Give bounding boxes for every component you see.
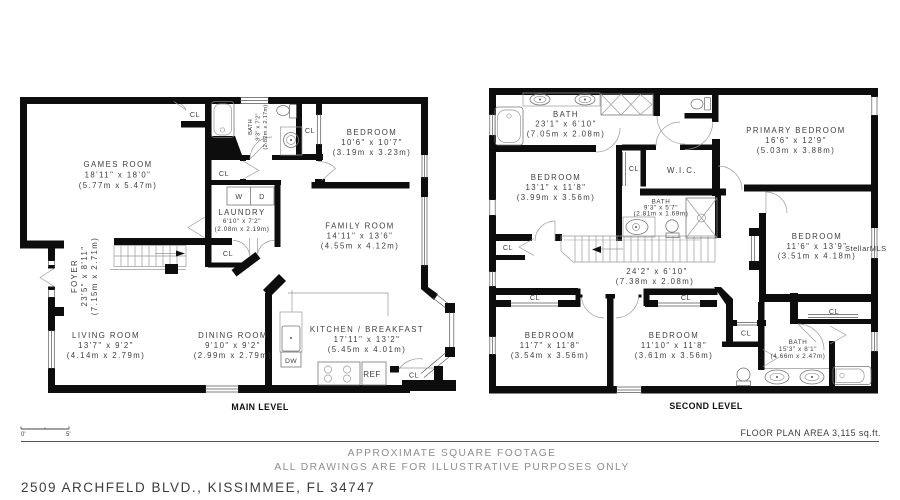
svg-text:FOYER: FOYER: [70, 259, 79, 293]
svg-text:16'6" x 12'9": 16'6" x 12'9": [765, 136, 827, 145]
svg-text:BATH: BATH: [248, 119, 254, 135]
svg-text:(2.81m x 1.69m): (2.81m x 1.69m): [634, 211, 689, 218]
svg-text:13'1" x 11'8": 13'1" x 11'8": [525, 183, 586, 192]
svg-text:SECOND LEVEL: SECOND LEVEL: [669, 401, 742, 411]
svg-text:BEDROOM: BEDROOM: [531, 173, 581, 182]
svg-text:11'7" x 11'8": 11'7" x 11'8": [520, 341, 580, 350]
svg-text:BATH: BATH: [789, 339, 808, 346]
svg-text:15'3" x 8'1": 15'3" x 8'1": [779, 346, 817, 353]
svg-text:CL: CL: [503, 243, 513, 252]
svg-text:14'11" x 13'6": 14'11" x 13'6": [327, 232, 394, 241]
svg-text:2509 ARCHFELD BLVD., KISSIMMEE: 2509 ARCHFELD BLVD., KISSIMMEE, FL 34747: [21, 480, 375, 495]
svg-text:FAMILY ROOM: FAMILY ROOM: [325, 222, 394, 231]
svg-text:BEDROOM: BEDROOM: [347, 128, 397, 137]
svg-text:(4.14m x 2.79m): (4.14m x 2.79m): [67, 351, 146, 360]
svg-text:(3.19m x 3.23m): (3.19m x 3.23m): [333, 148, 412, 157]
svg-text:MAIN LEVEL: MAIN LEVEL: [231, 402, 288, 412]
svg-text:BEDROOM: BEDROOM: [525, 331, 575, 340]
svg-text:(3.61m x 3.56m): (3.61m x 3.56m): [635, 351, 714, 360]
svg-text:W: W: [235, 192, 242, 201]
svg-text:FLOOR PLAN AREA 3,115 sq.ft.: FLOOR PLAN AREA 3,115 sq.ft.: [741, 428, 881, 438]
svg-text:13'7" x 9'2": 13'7" x 9'2": [78, 341, 134, 350]
svg-text:(4.66m x 2.47m): (4.66m x 2.47m): [771, 353, 826, 360]
svg-text:GAMES ROOM: GAMES ROOM: [83, 160, 152, 169]
svg-text:D: D: [259, 192, 265, 201]
svg-text:(7.38m x 2.08m): (7.38m x 2.08m): [616, 277, 695, 286]
svg-text:(3.54m x 3.56m): (3.54m x 3.56m): [511, 351, 590, 360]
svg-text:BEDROOM: BEDROOM: [792, 232, 842, 241]
svg-text:(7.05m x 2.08m): (7.05m x 2.08m): [527, 130, 606, 139]
svg-text:ALL DRAWINGS ARE FOR ILLUSTRAT: ALL DRAWINGS ARE FOR ILLUSTRATIVE PURPOS…: [274, 462, 629, 473]
svg-text:CL: CL: [530, 293, 540, 302]
svg-text:CL: CL: [829, 307, 839, 316]
svg-text:(7.15m x 2.71m): (7.15m x 2.71m): [90, 237, 99, 316]
svg-text:StellarMLS: StellarMLS: [845, 244, 887, 253]
svg-text:0': 0': [21, 432, 25, 438]
svg-text:11'10" x 11'8": 11'10" x 11'8": [641, 341, 707, 350]
svg-text:9'3" x 7'2": 9'3" x 7'2": [256, 113, 262, 141]
svg-text:CL: CL: [223, 249, 233, 258]
svg-text:CL: CL: [190, 110, 200, 119]
svg-text:BATH: BATH: [553, 110, 579, 119]
svg-text:CL: CL: [409, 371, 419, 380]
svg-text:6'10" x 7'2": 6'10" x 7'2": [223, 218, 261, 225]
svg-text:(4.55m x 4.12m): (4.55m x 4.12m): [321, 242, 400, 251]
svg-text:KITCHEN / BREAKFAST: KITCHEN / BREAKFAST: [310, 325, 424, 334]
svg-text:BEDROOM: BEDROOM: [649, 331, 699, 340]
svg-text:11'6" x 13'9": 11'6" x 13'9": [786, 242, 847, 251]
svg-text:CL: CL: [629, 164, 639, 173]
svg-text:CL: CL: [681, 293, 691, 302]
svg-text:(2.82m x 2.17m): (2.82m x 2.17m): [263, 104, 269, 149]
svg-text:DW: DW: [285, 358, 297, 365]
svg-text:(2.99m x 2.79m): (2.99m x 2.79m): [194, 351, 273, 360]
svg-text:(3.99m x 3.56m): (3.99m x 3.56m): [517, 193, 596, 202]
svg-text:(2.08m x 2.19m): (2.08m x 2.19m): [215, 226, 270, 233]
svg-text:APPROXIMATE SQUARE FOOTAGE: APPROXIMATE SQUARE FOOTAGE: [348, 448, 557, 459]
svg-text:REF: REF: [363, 370, 381, 379]
svg-text:24'2" x 6'10": 24'2" x 6'10": [626, 267, 688, 276]
svg-text:PRIMARY BEDROOM: PRIMARY BEDROOM: [746, 126, 845, 135]
svg-text:(5.45m x 4.01m): (5.45m x 4.01m): [328, 345, 407, 354]
svg-text:18'11" x 18'0": 18'11" x 18'0": [85, 171, 152, 180]
svg-text:10'6" x 10'7": 10'6" x 10'7": [341, 138, 403, 147]
svg-text:(5.03m x 3.88m): (5.03m x 3.88m): [757, 146, 836, 155]
svg-text:(5.77m x 5.47m): (5.77m x 5.47m): [79, 181, 158, 190]
svg-text:LAUNDRY: LAUNDRY: [218, 208, 265, 217]
svg-text:CL: CL: [741, 329, 751, 338]
svg-text:W.I.C.: W.I.C.: [667, 166, 697, 175]
svg-text:17'11" x 13'2": 17'11" x 13'2": [334, 335, 401, 344]
svg-text:9'10" x 9'2": 9'10" x 9'2": [205, 341, 261, 350]
svg-text:5': 5': [66, 432, 70, 438]
svg-text:23'1" x 6'10": 23'1" x 6'10": [535, 120, 597, 129]
svg-text:DINING ROOM: DINING ROOM: [198, 331, 268, 340]
svg-text:CL: CL: [219, 169, 229, 178]
svg-text:23'5" x 8'11": 23'5" x 8'11": [80, 245, 89, 306]
svg-text:CL: CL: [305, 126, 315, 135]
svg-text:LIVING ROOM: LIVING ROOM: [72, 331, 140, 340]
